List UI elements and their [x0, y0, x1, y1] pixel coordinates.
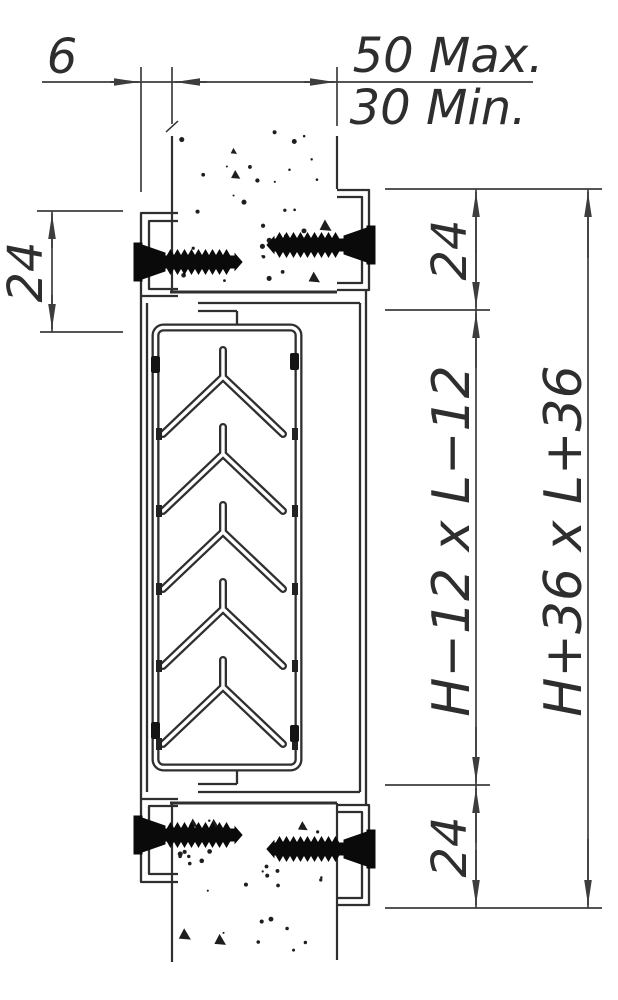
fixing-screws	[134, 226, 375, 868]
installation-section-drawing: 6 50 Max. 30 Min. 24 24 H−12 x L−12 24 H…	[0, 0, 618, 1000]
dim-flange-overlap-label: 24	[0, 241, 54, 302]
screw	[134, 243, 242, 281]
dim-wall-min-label: 30 Min.	[350, 80, 527, 136]
louver-panel	[151, 328, 299, 768]
frame-profile	[141, 190, 369, 905]
dim-top-margin-label: 24	[422, 219, 478, 280]
screw	[267, 830, 375, 868]
dim-gap-label: 6	[47, 29, 78, 85]
screw	[134, 816, 242, 854]
wall-bottom	[170, 803, 337, 962]
dim-overall-label: H+36 x L+36	[534, 365, 594, 716]
dim-bottom-margin-label: 24	[422, 816, 478, 877]
dim-core-label: H−12 x L−12	[422, 365, 482, 716]
screw	[267, 226, 375, 264]
dim-wall-max-label: 50 Max.	[353, 28, 544, 84]
